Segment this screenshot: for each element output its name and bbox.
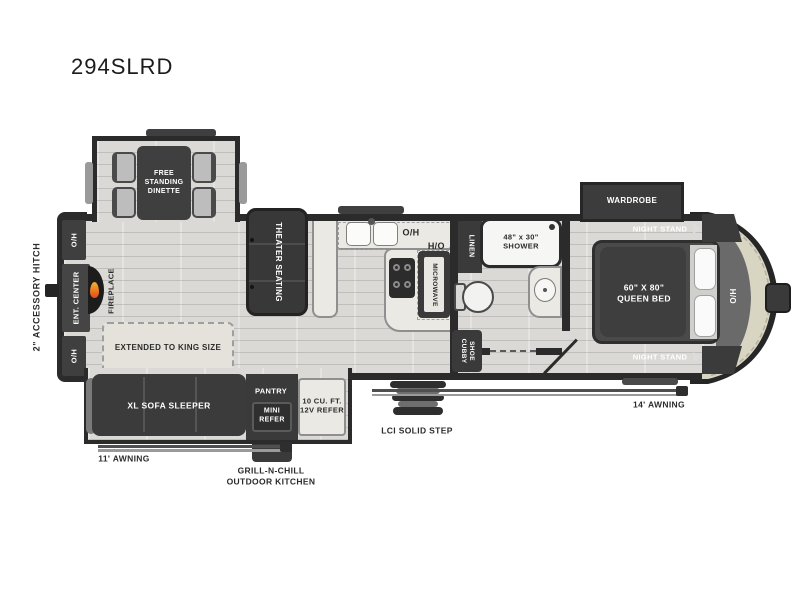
faucet: [368, 218, 375, 225]
front-overhead-label: O/H: [729, 288, 739, 303]
awning-11-label: 11' AWNING: [98, 454, 150, 465]
shower-label: 48" x 30" SHOWER: [503, 233, 539, 252]
flame-icon: [90, 282, 99, 298]
sofa-label: XL SOFA SLEEPER: [127, 401, 210, 412]
kitchen-overhead-label: O/H: [402, 227, 419, 238]
linen-label: LINEN: [466, 235, 475, 258]
bathroom-door-dashed: [490, 350, 536, 352]
night-stand-top-label: NIGHT STAND: [633, 224, 688, 233]
accessory-hitch-receiver: [45, 284, 59, 297]
awning-11-endcap: [280, 442, 292, 452]
night-stand-arrow-icon: [693, 352, 701, 362]
ent-center-label: ENT. CENTER: [71, 271, 80, 324]
dinette-slide-rail-right: [239, 162, 247, 204]
microwave-label: MICROWAVE: [430, 263, 438, 306]
step-label: LCI SOLID STEP: [381, 426, 453, 437]
mini-refer-label: MINI REFER: [259, 407, 284, 425]
entry-step: [390, 381, 446, 388]
dinette-slide-rail-left: [85, 162, 93, 204]
shower-head-icon: [549, 224, 555, 230]
burner: [404, 281, 411, 288]
overhead-rear-top-label: O/H: [69, 233, 78, 247]
burner: [404, 264, 411, 271]
refrigerator-label: 10 CU. FT. 12V REFER: [300, 397, 344, 416]
wardrobe-label: WARDROBE: [607, 196, 657, 206]
kitchen-window: [338, 206, 404, 214]
dinette-chair: [192, 187, 216, 218]
awning-11-rail: [98, 445, 288, 448]
awning-14-rail: [372, 389, 684, 392]
bathroom-wall-bottom: [536, 348, 562, 355]
entry-grab-handle: [622, 378, 678, 385]
bedroom-wall: [562, 221, 570, 331]
shoe-cubby-label: SHOE CUBBY: [459, 339, 475, 364]
accessory-hitch-label: 2" ACCESSORY HITCH: [31, 243, 42, 352]
theater-label: THEATER SEATING: [273, 222, 283, 302]
pillow: [694, 295, 716, 337]
dinette-chair: [192, 152, 216, 183]
fireplace-label: FIREPLACE: [106, 268, 115, 314]
awning-11-rail: [98, 449, 288, 452]
king-extension-label: EXTENDED TO KING SIZE: [115, 343, 221, 353]
floorplan-canvas: 294SLRD FREE STANDING DINETTE THEATER SE…: [0, 0, 800, 600]
burner: [393, 264, 400, 271]
dinette-chair: [112, 187, 136, 218]
burner: [393, 281, 400, 288]
overhead-rear-bottom-label: O/H: [69, 349, 78, 363]
awning-14-rail: [372, 394, 684, 397]
pillow: [694, 248, 716, 290]
kitchen-sink-basin: [346, 222, 371, 246]
kitchen-sink-basin: [373, 222, 398, 246]
entry-step: [393, 407, 443, 415]
cupholder: [250, 238, 254, 242]
awning-14-endcap: [676, 386, 688, 396]
range-cooktop: [389, 258, 415, 298]
kingpin-hitch-box: [766, 284, 790, 312]
model-title: 294SLRD: [71, 54, 173, 80]
cupholder: [250, 285, 254, 289]
kitchen-counter-leg: [312, 221, 338, 318]
outdoor-kitchen-label: GRILL-N-CHILL OUTDOOR KITCHEN: [227, 465, 316, 486]
dinette-chair: [112, 152, 136, 183]
toilet-bowl: [462, 281, 494, 313]
kitchen-overhead-label-2: O/H: [427, 239, 444, 250]
night-stand-bottom-label: NIGHT STAND: [633, 352, 688, 361]
dinette-label: FREE STANDING DINETTE: [145, 170, 184, 196]
vanity-faucet: [543, 288, 547, 292]
awning-14-label: 14' AWNING: [633, 400, 685, 411]
night-stand-arrow-icon: [693, 224, 701, 234]
pantry-label: PANTRY: [255, 386, 287, 395]
queen-bed-label: 60" X 80" QUEEN BED: [617, 282, 671, 303]
